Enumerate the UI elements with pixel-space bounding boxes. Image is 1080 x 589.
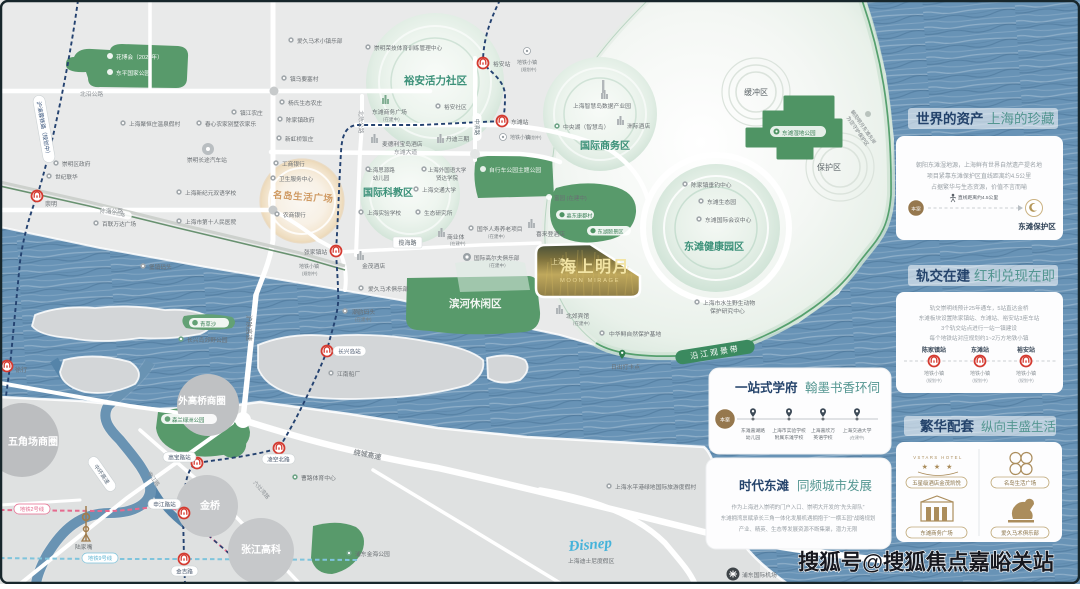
svg-text:中央湖（智慧岛）: 中央湖（智慧岛） — [563, 123, 609, 131]
svg-text:沪陕高速: 沪陕高速 — [245, 315, 254, 342]
svg-text:贤达学院: 贤达学院 — [436, 174, 459, 182]
svg-text:纵向丰盛生活: 纵向丰盛生活 — [981, 419, 1056, 434]
svg-text:本案: 本案 — [911, 206, 921, 213]
svg-text:朝阳东滩湿地源，上海鲜有世界自然遗产提名地: 朝阳东滩湿地源，上海鲜有世界自然遗产提名地 — [916, 161, 1042, 169]
svg-text:裕安社区: 裕安社区 — [444, 103, 467, 111]
svg-text:上海市实验学校: 上海市实验学校 — [772, 427, 806, 434]
svg-text:潮韵码头: 潮韵码头 — [352, 308, 375, 316]
svg-text:浦东国际机场: 浦东国际机场 — [742, 571, 777, 579]
svg-text:工商银行: 工商银行 — [282, 160, 305, 168]
svg-text:裕安站: 裕安站 — [1016, 346, 1035, 354]
svg-text:徐行: 徐行 — [15, 366, 27, 374]
svg-text:一站式学府: 一站式学府 — [735, 380, 798, 395]
svg-text:杨氏生态农庄: 杨氏生态农庄 — [288, 99, 322, 107]
svg-text:附属东滩学校: 附属东滩学校 — [775, 434, 804, 441]
svg-text:裕安站: 裕安站 — [493, 60, 511, 68]
svg-text:崇明长途汽车站: 崇明长途汽车站 — [187, 156, 227, 164]
svg-text:占据繁华与生态资源，价值不言而喻: 占据繁华与生态资源，价值不言而喻 — [931, 183, 1027, 191]
svg-text:东滩大道: 东滩大道 — [394, 148, 417, 156]
svg-text:镇江农庄: 镇江农庄 — [240, 109, 263, 117]
svg-text:作为上海进入崇明的门户入口、崇明大开发的“先头部队”: 作为上海进入崇明的门户入口、崇明大开发的“先头部队” — [732, 503, 865, 511]
svg-text:幼儿园: 幼儿园 — [373, 174, 390, 182]
svg-text:翰墨书香环伺: 翰墨书香环伺 — [805, 380, 880, 395]
svg-text:金茂酒店: 金茂酒店 — [362, 262, 385, 270]
svg-text:世界的资产: 世界的资产 — [916, 111, 984, 127]
svg-text:长兴岛郊野公园: 长兴岛郊野公园 — [187, 336, 228, 344]
svg-text:浦东金海公园: 浦东金海公园 — [355, 550, 390, 558]
svg-text:(规划中): (规划中) — [521, 66, 537, 73]
svg-text:地铁小镇: 地铁小镇 — [970, 370, 990, 377]
svg-text:3个轨交站点进行一站一镇建设: 3个轨交站点进行一站一镇建设 — [941, 324, 1017, 332]
svg-text:搜狐号@搜狐焦点嘉峪关站: 搜狐号@搜狐焦点嘉峪关站 — [798, 550, 1054, 575]
svg-text:产业、精英、生态等发展资源不断集聚，潜力无限: 产业、精英、生态等发展资源不断集聚，潜力无限 — [739, 525, 858, 533]
svg-text:名岛生活广场: 名岛生活广场 — [1004, 479, 1037, 487]
svg-text:中华鲟自然保护基地: 中华鲟自然保护基地 — [609, 330, 661, 338]
svg-text:红利兑现在即: 红利兑现在即 — [974, 269, 1055, 284]
svg-text:地铁小镇: 地铁小镇 — [299, 263, 319, 270]
svg-text:裕安活力社区: 裕安活力社区 — [403, 74, 467, 87]
svg-text:国华人寿养老项目: 国华人寿养老项目 — [477, 225, 523, 233]
svg-text:爱久马术俱乐部: 爱久马术俱乐部 — [1001, 529, 1039, 537]
svg-text:东平国家公园: 东平国家公园 — [116, 69, 150, 77]
svg-text:上海思源路: 上海思源路 — [367, 166, 395, 174]
svg-text:项目紧靠东滩保护区直线距离约4.5公里: 项目紧靠东滩保护区直线距离约4.5公里 — [927, 172, 1031, 180]
svg-text:本案: 本案 — [720, 417, 730, 424]
svg-text:申江路站: 申江路站 — [153, 500, 176, 508]
svg-text:（在建中）: （在建中） — [486, 262, 509, 269]
svg-text:地铁2号线: 地铁2号线 — [20, 505, 45, 513]
svg-text:嘉东康郡村: 嘉东康郡村 — [567, 212, 593, 220]
svg-text:东滩站: 东滩站 — [511, 118, 529, 126]
svg-text:东滩站: 东滩站 — [971, 346, 989, 354]
svg-text:富园 (在建中): 富园 (在建中) — [554, 194, 587, 202]
svg-text:(在建中): (在建中) — [850, 434, 865, 440]
svg-text:(规划中): (规划中) — [302, 270, 318, 277]
svg-text:日出打卡点: 日出打卡点 — [611, 363, 640, 371]
svg-text:国际科教区: 国际科教区 — [363, 186, 413, 199]
svg-text:堡镇码头: 堡镇码头 — [149, 263, 172, 271]
svg-text:新虹桥饭庄: 新虹桥饭庄 — [285, 135, 314, 143]
svg-text:江南船厂: 江南船厂 — [337, 370, 360, 378]
svg-text:保护区: 保护区 — [817, 162, 841, 172]
svg-text:地铁小镇: 地铁小镇 — [924, 370, 944, 377]
svg-text:滨河休闲区: 滨河休闲区 — [449, 297, 502, 310]
svg-text:东滩生态园: 东滩生态园 — [707, 198, 736, 206]
svg-text:陈家镇政府: 陈家镇政府 — [286, 116, 315, 124]
svg-text:农商银行: 农商银行 — [283, 211, 306, 219]
svg-text:外高桥商圈: 外高桥商圈 — [177, 395, 226, 407]
svg-text:幼儿园: 幼儿园 — [746, 434, 761, 441]
svg-text:花博会（2021年）: 花博会（2021年） — [116, 53, 163, 61]
svg-text:卫生服务中心: 卫生服务中心 — [279, 175, 313, 183]
svg-text:丹迪三期: 丹迪三期 — [446, 135, 469, 143]
svg-text:轨交崇明线预计25年通车，5站直达金桥: 轨交崇明线预计25年通车，5站直达金桥 — [930, 304, 1029, 312]
svg-text:(在建中): (在建中) — [450, 240, 466, 247]
svg-text:北陈公路: 北陈公路 — [357, 110, 365, 133]
svg-text:上海迪士尼度假区: 上海迪士尼度假区 — [568, 557, 615, 565]
svg-text:东湖颐景区: 东湖颐景区 — [598, 228, 624, 236]
svg-text:爱久马术小镇乐部: 爱久马术小镇乐部 — [297, 37, 343, 45]
svg-text:陈海公路: 陈海公路 — [100, 207, 123, 215]
svg-text:东滩商务广场: 东滩商务广场 — [920, 529, 953, 537]
svg-text:上海聚恒庄温泉假村: 上海聚恒庄温泉假村 — [129, 120, 180, 128]
svg-text:同频城市发展: 同频城市发展 — [797, 478, 872, 493]
svg-text:自行车公园主题公园: 自行车公园主题公园 — [489, 166, 541, 174]
svg-text:上海嘉欣万: 上海嘉欣万 — [811, 427, 835, 434]
svg-text:陈家镇垂钓中心: 陈家镇垂钓中心 — [691, 181, 732, 189]
svg-text:金吉路: 金吉路 — [176, 567, 193, 575]
svg-text:爱久马术俱乐部: 爱久马术俱乐部 — [368, 285, 409, 293]
svg-text:商业体: 商业体 — [447, 233, 465, 241]
svg-text:(在建中): (在建中) — [355, 316, 372, 323]
svg-text:高宝路站: 高宝路站 — [168, 453, 191, 461]
svg-text:洲际酒店: 洲际酒店 — [627, 122, 650, 130]
svg-text:国际商务区: 国际商务区 — [580, 139, 630, 152]
svg-text:英语学校: 英语学校 — [813, 434, 832, 441]
svg-text:百联万达广场: 百联万达广场 — [102, 220, 136, 228]
svg-text:繁华配套: 繁华配套 — [919, 418, 974, 434]
svg-text:上海智慧岛数据产业园: 上海智慧岛数据产业园 — [573, 102, 631, 110]
svg-text:(规划中): (规划中) — [926, 377, 942, 384]
svg-text:时代东滩: 时代东滩 — [739, 478, 790, 493]
svg-text:国际高尔夫俱乐部: 国际高尔夫俱乐部 — [474, 254, 520, 262]
svg-text:上海交通大学: 上海交通大学 — [422, 186, 456, 194]
svg-text:东滩嘉湖路: 东滩嘉湖路 — [741, 427, 765, 434]
svg-text:北沿公路: 北沿公路 — [80, 90, 103, 98]
svg-text:凌空北路: 凌空北路 — [267, 455, 290, 463]
svg-text:东滩商务广场: 东滩商务广场 — [372, 108, 407, 116]
svg-text:森兰绿洲公园: 森兰绿洲公园 — [172, 416, 204, 424]
svg-text:海上明月: 海上明月 — [560, 257, 630, 276]
svg-text:缓冲区: 缓冲区 — [744, 87, 768, 97]
svg-text:(规划中): (规划中) — [1018, 377, 1034, 384]
svg-text:崇明荣技体育训练管理中心: 崇明荣技体育训练管理中心 — [374, 44, 443, 52]
svg-text:喜来登酒店: 喜来登酒店 — [536, 230, 565, 238]
svg-text:VSTARS HOTEL: VSTARS HOTEL — [913, 455, 963, 460]
svg-text:★ ★ ★: ★ ★ ★ — [922, 463, 955, 471]
svg-text:生态研究所: 生态研究所 — [424, 209, 453, 217]
svg-text:陆家嘴: 陆家嘴 — [75, 543, 93, 551]
svg-text:曹路体育中心: 曹路体育中心 — [301, 474, 336, 482]
svg-text:地铁小镇: 地铁小镇 — [517, 59, 537, 66]
svg-text:金桥: 金桥 — [199, 499, 221, 512]
svg-text:张江高科: 张江高科 — [241, 543, 281, 556]
svg-text:春心农家别墅农家乐: 春心农家别墅农家乐 — [205, 120, 256, 128]
svg-text:张家镇站: 张家镇站 — [304, 248, 327, 256]
svg-text:（在建中）: （在建中） — [380, 116, 403, 123]
svg-text:上海水平港绿地国际旅游度假村: 上海水平港绿地国际旅游度假村 — [615, 483, 696, 491]
svg-text:地铁小镇: 地铁小镇 — [1016, 370, 1036, 377]
svg-text:五角场商圈: 五角场商圈 — [8, 435, 58, 448]
svg-text:世纪联华: 世纪联华 — [55, 173, 78, 181]
svg-text:直线距离约4.5公里: 直线距离约4.5公里 — [958, 194, 998, 201]
svg-text:镇乌要塞村: 镇乌要塞村 — [290, 75, 319, 83]
svg-text:上海实验学校: 上海实验学校 — [367, 209, 401, 217]
svg-text:东滩板块设置陈家镇站、东滩站、裕安站3座车站: 东滩板块设置陈家镇站、东滩站、裕安站3座车站 — [919, 314, 1040, 322]
svg-text:（在建中）: （在建中） — [485, 233, 508, 240]
svg-text:保护研究中心: 保护研究中心 — [710, 307, 745, 315]
svg-text:上海市第十人民医院: 上海市第十人民医院 — [185, 218, 236, 226]
svg-text:揽海路: 揽海路 — [398, 239, 416, 247]
svg-text:(规划中): (规划中) — [526, 134, 542, 141]
svg-text:五星级酒店金茂凯悦: 五星级酒店金茂凯悦 — [912, 479, 961, 487]
svg-text:东滩拥湾禀赋承长三角一体化发展机遇拥抱于“一横五园”战略规划: 东滩拥湾禀赋承长三角一体化发展机遇拥抱于“一横五园”战略规划 — [721, 514, 876, 522]
svg-text:上海新纪元双语学校: 上海新纪元双语学校 — [185, 189, 236, 197]
svg-text:轨交在建: 轨交在建 — [916, 268, 970, 284]
svg-text:MOON MIRAGE: MOON MIRAGE — [560, 278, 620, 284]
svg-text:崇明区政府: 崇明区政府 — [62, 160, 91, 168]
svg-text:东滩国际会议中心: 东滩国际会议中心 — [705, 216, 752, 224]
svg-text:每个地铁站对应规划约1~2万方地铁小镇: 每个地铁站对应规划约1~2万方地铁小镇 — [930, 334, 1029, 342]
svg-text:上海的珍藏: 上海的珍藏 — [987, 112, 1055, 127]
svg-text:东滩健康园区: 东滩健康园区 — [684, 240, 744, 253]
svg-text:东滩湿地公园: 东滩湿地公园 — [782, 129, 816, 137]
svg-text:（在建中）: （在建中） — [570, 320, 593, 327]
svg-text:上海市水生野生动物: 上海市水生野生动物 — [703, 299, 755, 307]
svg-text:上海外国语大学: 上海外国语大学 — [428, 166, 467, 174]
svg-text:中滨路: 中滨路 — [473, 119, 481, 136]
svg-text:长兴岛站: 长兴岛站 — [338, 347, 361, 355]
svg-text:陈家镇站: 陈家镇站 — [922, 346, 946, 354]
svg-text:(规划中): (规划中) — [972, 377, 988, 384]
svg-text:东滩保护区: 东滩保护区 — [1018, 221, 1056, 231]
svg-text:崇明: 崇明 — [45, 201, 57, 208]
svg-text:麦德利宝岛酒店: 麦德利宝岛酒店 — [382, 140, 423, 148]
svg-text:上海交通大学: 上海交通大学 — [843, 427, 872, 434]
svg-text:北郊宾馆: 北郊宾馆 — [566, 312, 589, 320]
svg-text:地铁9号线: 地铁9号线 — [88, 554, 113, 562]
svg-text:青草沙: 青草沙 — [200, 320, 217, 328]
